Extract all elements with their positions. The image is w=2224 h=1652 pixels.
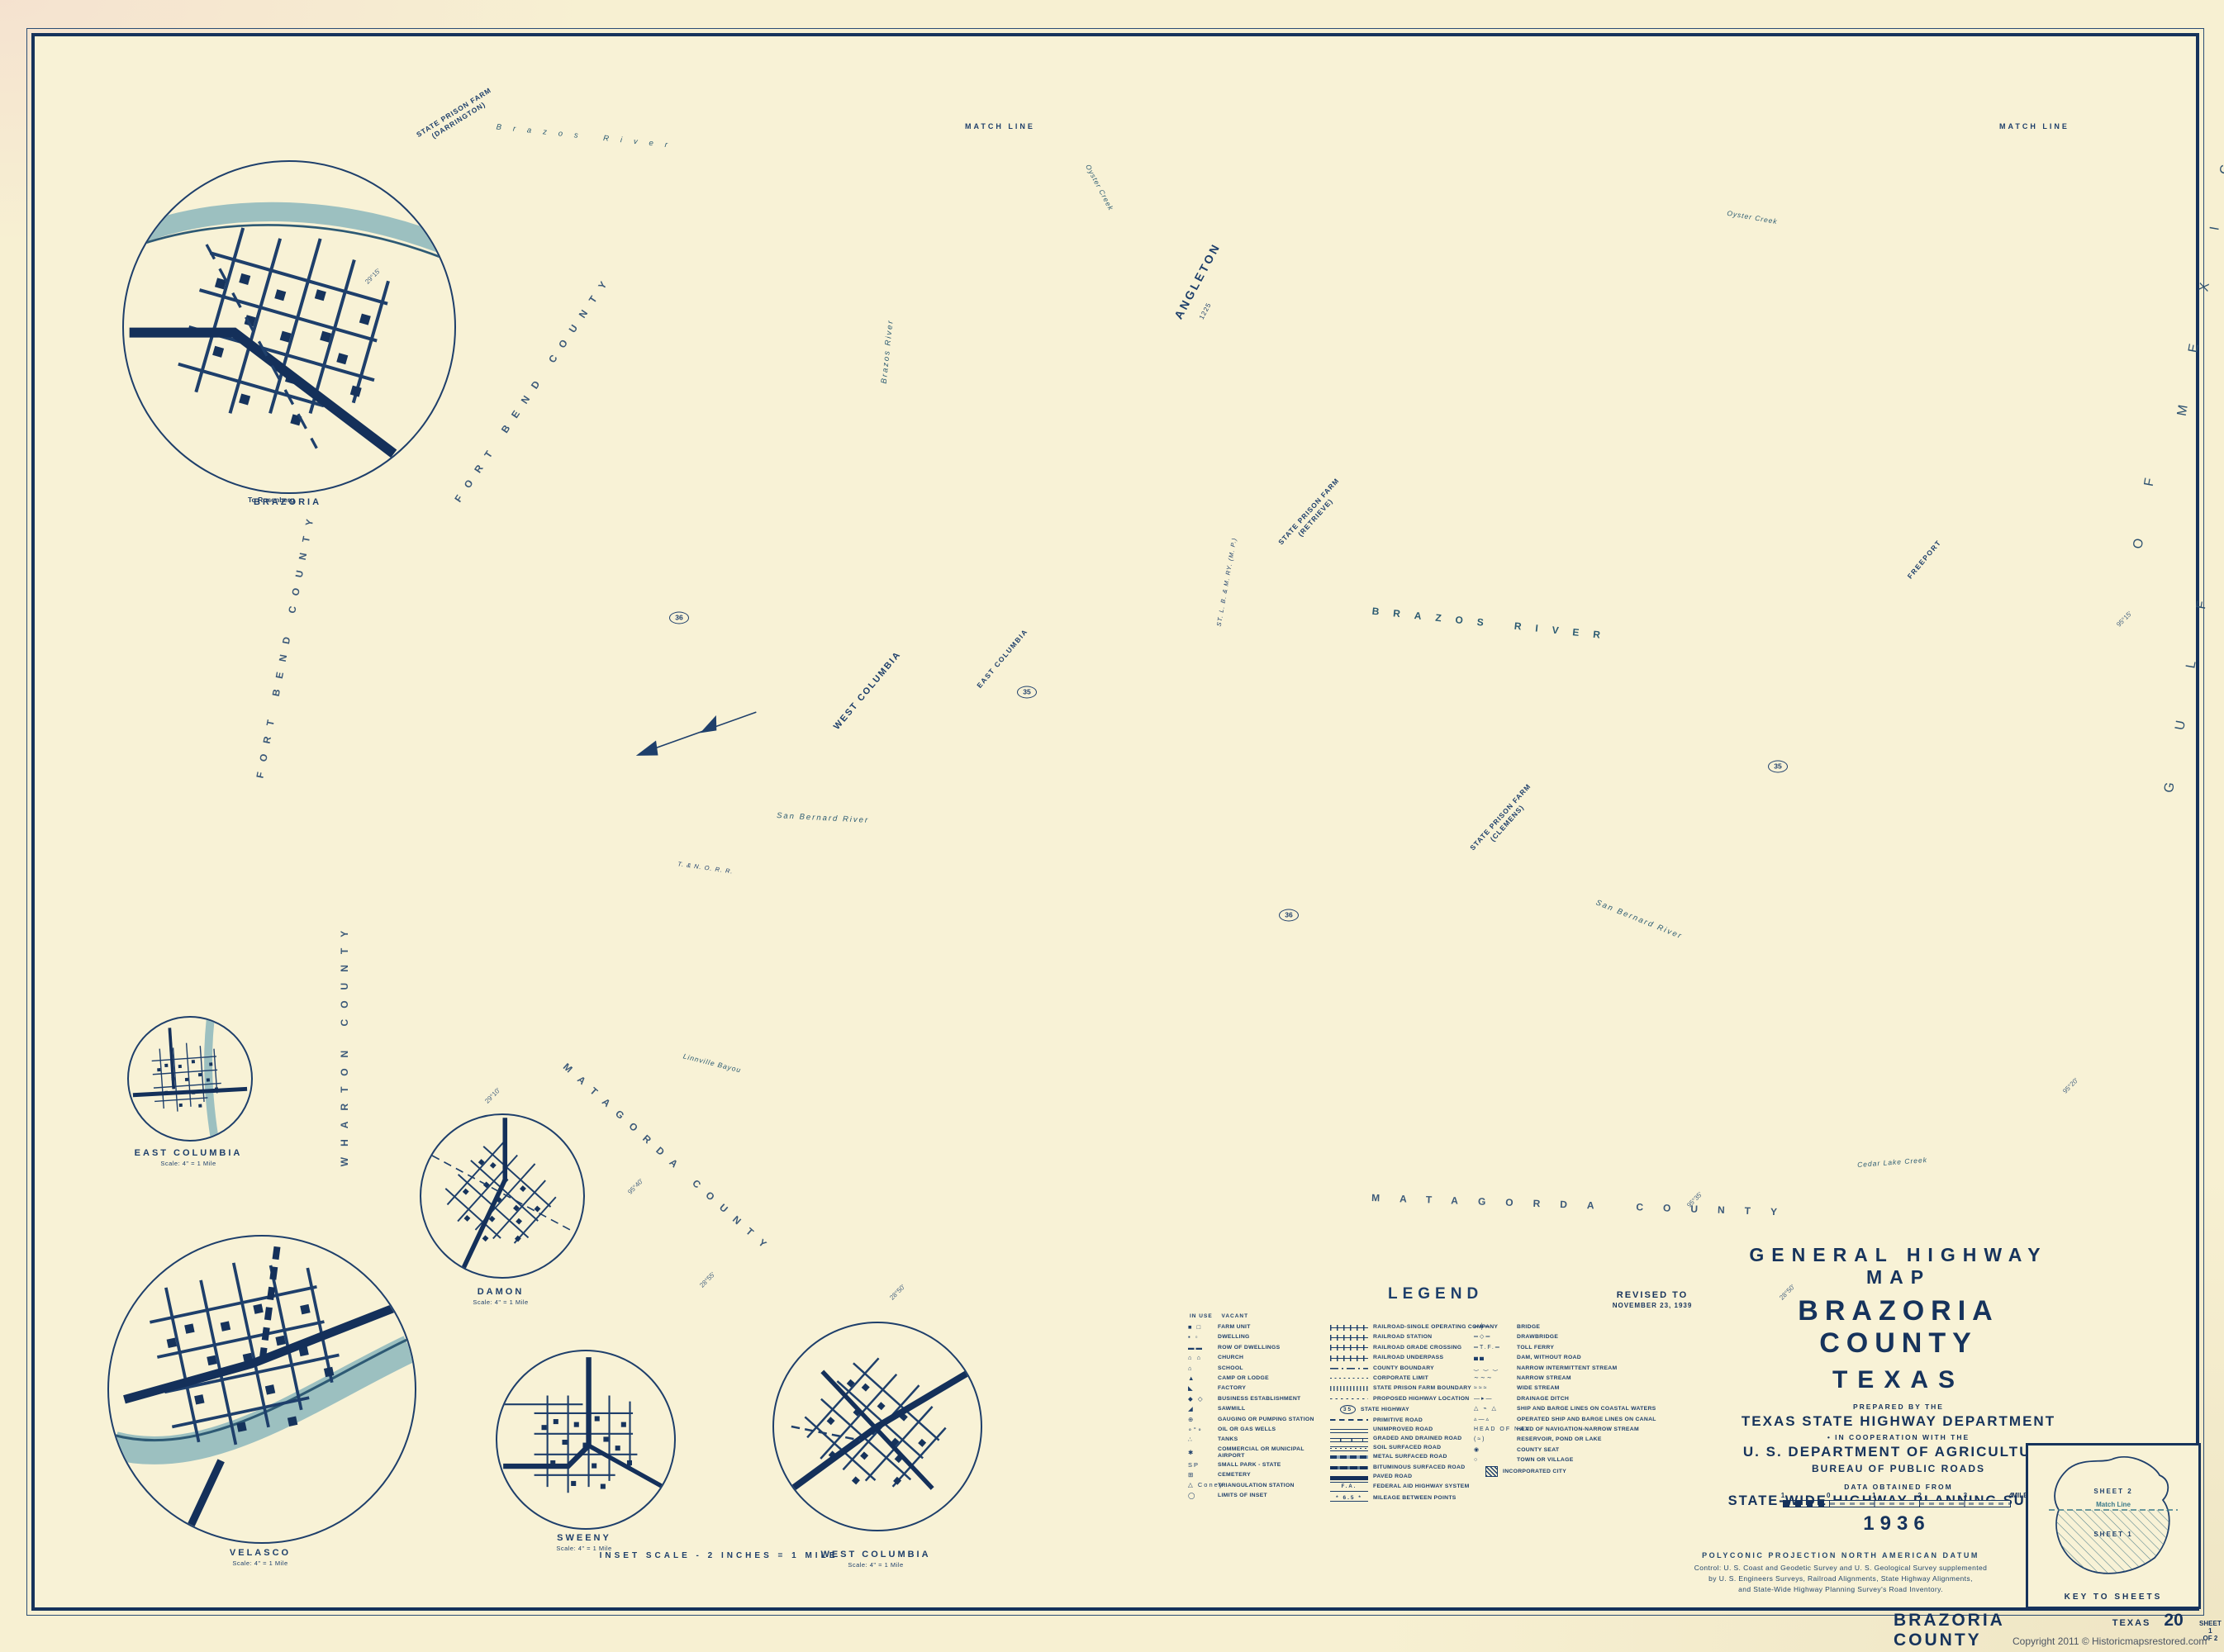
legend-item: ⌂SCHOOL (1188, 1365, 1327, 1373)
footer-state: TEXAS (2112, 1618, 2151, 1628)
data-obtained-line: DATA OBTAINED FROM (1725, 1483, 2072, 1491)
legend-item-label: CORPORATE LIMIT (1373, 1375, 1428, 1382)
legend-item-label: DRAINAGE DITCH (1517, 1396, 1569, 1403)
legend-item-label: OPERATED SHIP AND BARGE LINES ON CANAL (1517, 1417, 1656, 1423)
inset-name: VELASCO (230, 1548, 291, 1558)
inset-velasco-art (109, 1237, 415, 1542)
legend-item: ○TOWN OR VILLAGE (1474, 1456, 1672, 1464)
factory-icon: ◣ (1188, 1384, 1213, 1393)
legend-item-label: DAM, WITHOUT ROAD (1517, 1355, 1581, 1361)
map-kicker: GENERAL HIGHWAY MAP (1725, 1244, 2072, 1289)
ship-coastal-icon: △ ⌁ △ (1474, 1405, 1512, 1413)
legend-item-label: NARROW INTERMITTENT STREAM (1517, 1365, 1617, 1372)
legend-item: ∴TANKS (1188, 1436, 1327, 1444)
legend-item-label: TRIANGULATION STATION (1218, 1483, 1295, 1489)
copyright-line: Copyright 2011 © Historicmapsrestored.co… (2013, 1635, 2207, 1647)
inset-brazoria (122, 160, 456, 494)
inset-scale: Scale: 4" = 1 Mile (473, 1298, 528, 1306)
legend-item-label: CAMP OR LODGE (1218, 1375, 1269, 1382)
legend-item: ▵—▵OPERATED SHIP AND BARGE LINES ON CANA… (1474, 1416, 1672, 1424)
legend-item: △ ConeyTRIANGULATION STATION (1188, 1481, 1327, 1489)
legend-item: ═╪═BRIDGE (1474, 1323, 1672, 1332)
inset-scale: Scale: 4" = 1 Mile (820, 1561, 930, 1569)
legend-item-label: DWELLING (1218, 1334, 1250, 1341)
inset-east-columbia-art (129, 1018, 251, 1140)
legend-item: HEAD OF NAVHEAD OF NAVIGATION-NARROW STR… (1474, 1426, 1672, 1434)
key-to-sheets-caption: KEY TO SHEETS (2028, 1593, 2198, 1602)
metal-road-icon (1330, 1453, 1368, 1461)
scale-tick-label: 1 (1872, 1492, 1875, 1499)
bureau-line: BUREAU OF PUBLIC ROADS (1725, 1463, 2072, 1474)
state-highway-shield: 35 (1017, 686, 1037, 699)
ship-canal-icon: ▵—▵ (1474, 1416, 1512, 1424)
airport-icon: ✱ (1188, 1449, 1213, 1457)
county-seat-icon: ◉ (1474, 1446, 1512, 1455)
inset-velasco-caption: VELASCO Scale: 4" = 1 Mile (230, 1548, 291, 1567)
legend-item: △ ⌁ △SHIP AND BARGE LINES ON COASTAL WAT… (1474, 1405, 1672, 1413)
county-boundary-icon (1330, 1365, 1368, 1373)
railroad-icon (1330, 1323, 1368, 1332)
wharton-county-label: WHARTON COUNTY (339, 920, 350, 1166)
legend-item: ▪ ▫DWELLING (1188, 1333, 1327, 1341)
narrow-int-stream-icon: ‿ ‿ ‿ (1474, 1365, 1512, 1373)
legend-item-label: STATE HIGHWAY (1361, 1407, 1409, 1413)
inset-damon-art (421, 1115, 583, 1277)
state-highway-icon: 35 (1340, 1405, 1356, 1414)
inset-sweeny-art (497, 1351, 674, 1528)
school-icon: ⌂ (1188, 1365, 1213, 1373)
control-line-3: and State-Wide Highway Planning Survey's… (1694, 1584, 1988, 1595)
legend-item: ⊕GAUGING OR PUMPING STATION (1188, 1416, 1327, 1424)
tanks-icon: ∴ (1188, 1436, 1213, 1444)
legend-item-label: COMMERCIAL OR MUNICIPAL AIRPORT (1218, 1446, 1327, 1460)
legend-item: ◯LIMITS OF INSET (1188, 1492, 1327, 1500)
legend-item-label: FACTORY (1218, 1385, 1246, 1392)
legend-item-label: BRIDGE (1517, 1324, 1540, 1331)
inset-brazoria-caption: BRAZORIA (254, 497, 321, 507)
legend: LEGEND IN USE VACANT ■ □FARM UNIT▪ ▫DWEL… (1188, 1282, 1717, 1505)
legend-item-label: PAVED ROAD (1373, 1474, 1412, 1480)
scale-bar: MILES 101234 1936 (1783, 1492, 2011, 1536)
legend-item: F.A.FEDERAL AID HIGHWAY SYSTEM (1330, 1482, 1510, 1492)
legend-item-label: FEDERAL AID HIGHWAY SYSTEM (1373, 1483, 1470, 1490)
legend-in-use-header: IN USE (1190, 1313, 1213, 1319)
church-icon: ⌂ ⌂ (1188, 1354, 1213, 1362)
farm-unit-icon: ■ □ (1188, 1323, 1213, 1332)
legend-item: SPSMALL PARK - STATE (1188, 1461, 1327, 1469)
legend-vacant-header: VACANT (1221, 1313, 1248, 1319)
legend-item: ⊞CEMETERY (1188, 1471, 1327, 1479)
legend-item-label: SCHOOL (1218, 1365, 1243, 1372)
inset-scale: Scale: 4" = 1 Mile (135, 1160, 243, 1167)
department-line: TEXAS STATE HIGHWAY DEPARTMENT (1725, 1413, 2072, 1430)
legend-item: ▬▬ROW OF DWELLINGS (1188, 1344, 1327, 1352)
small-park-icon: SP (1188, 1461, 1213, 1469)
legend-item-label: LIMITS OF INSET (1218, 1493, 1267, 1499)
legend-item-label: INCORPORATED CITY (1503, 1469, 1566, 1475)
legend-item-label: HEAD OF NAVIGATION-NARROW STREAM (1517, 1427, 1639, 1433)
legend-item: —▸—DRAINAGE DITCH (1474, 1395, 1672, 1403)
usda-line: U. S. DEPARTMENT OF AGRICULTURE (1725, 1444, 2072, 1460)
federal-aid-icon: F.A. (1330, 1482, 1368, 1492)
legend-item: ═◇═DRAWBRIDGE (1474, 1333, 1672, 1341)
legend-item-label: RAILROAD GRADE CROSSING (1373, 1345, 1461, 1351)
legend-item: (≈)RESERVOIR, POND OR LAKE (1474, 1436, 1672, 1444)
legend-item-label: RESERVOIR, POND OR LAKE (1517, 1436, 1602, 1443)
legend-item: ≈≈≈WIDE STREAM (1474, 1384, 1672, 1393)
legend-item-label: GAUGING OR PUMPING STATION (1218, 1417, 1314, 1423)
narrow-stream-icon: ∼∼∼ (1474, 1374, 1512, 1383)
footer-sheet-number: 20 (2164, 1611, 2183, 1631)
legend-column-symbols: ■ □FARM UNIT▪ ▫DWELLING▬▬ROW OF DWELLING… (1188, 1323, 1327, 1502)
legend-column-water: ═╪═BRIDGE═◇═DRAWBRIDGE═T.F.═TOLL FERRY▄▄… (1474, 1323, 1672, 1479)
legend-item-label: CHURCH (1218, 1355, 1243, 1361)
legend-item: * 6.5 *MILEAGE BETWEEN POINTS (1330, 1494, 1510, 1502)
legend-item: ▄▄DAM, WITHOUT ROAD (1474, 1354, 1672, 1362)
legend-item-label: NARROW STREAM (1517, 1375, 1571, 1382)
title-block: GENERAL HIGHWAY MAP BRAZORIA COUNTY TEXA… (1725, 1244, 2072, 1509)
inset-scale-note: INSET SCALE - 2 INCHES = 1 MILE (600, 1551, 839, 1560)
head-nav-icon: HEAD OF NAV (1474, 1426, 1512, 1434)
scale-tick-label: 2 (1917, 1492, 1921, 1499)
legend-item-label: TOWN OR VILLAGE (1517, 1457, 1574, 1464)
prison-boundary-icon (1330, 1384, 1368, 1393)
cooperation-line: • IN COOPERATION WITH THE (1725, 1433, 2072, 1441)
business-icon: ◆ ◇ (1188, 1395, 1213, 1403)
key-sheet1-label: SHEET 1 (2093, 1531, 2132, 1538)
legend-item-label: DRAWBRIDGE (1517, 1334, 1558, 1341)
scale-bar-rule (1783, 1500, 2011, 1507)
legend-item-label: GRADED AND DRAINED ROAD (1373, 1436, 1461, 1442)
legend-item: ◣FACTORY (1188, 1384, 1327, 1393)
legend-item: ✱COMMERCIAL OR MUNICIPAL AIRPORT (1188, 1446, 1327, 1460)
proposed-highway-icon (1330, 1395, 1368, 1403)
legend-item: ▲CAMP OR LODGE (1188, 1374, 1327, 1383)
triangulation-icon: △ Coney (1188, 1481, 1213, 1489)
bridge-icon: ═╪═ (1474, 1323, 1512, 1332)
inset-east-columbia-caption: EAST COLUMBIA Scale: 4" = 1 Mile (135, 1148, 243, 1167)
inset-west-columbia-art (774, 1323, 981, 1530)
inset-brazoria-art (124, 162, 454, 492)
footer-sheet-line1: SHEET 1 (2197, 1621, 2224, 1635)
state-highway-shield: 35 (1768, 761, 1788, 773)
legend-item-label: ROW OF DWELLINGS (1218, 1345, 1280, 1351)
legend-item: ◆ ◇BUSINESS ESTABLISHMENT (1188, 1395, 1327, 1403)
inset-name: DAMON (473, 1287, 528, 1297)
legend-item-label: OIL OR GAS WELLS (1218, 1427, 1276, 1433)
legend-item-label: FARM UNIT (1218, 1324, 1251, 1331)
dam-icon: ▄▄ (1474, 1354, 1512, 1362)
map-title-state: TEXAS (1725, 1366, 2072, 1394)
legend-item-label: RAILROAD UNDERPASS (1373, 1355, 1443, 1361)
soil-road-icon (1330, 1446, 1368, 1450)
control-line-1: Control: U. S. Coast and Geodetic Survey… (1694, 1563, 1988, 1574)
mileage-icon: * 6.5 * (1330, 1494, 1368, 1502)
inset-velasco (107, 1235, 416, 1544)
toll-ferry-icon: ═T.F.═ (1474, 1344, 1512, 1352)
legend-item-label: STATE PRISON FARM BOUNDARY (1373, 1385, 1471, 1392)
map-title-county: BRAZORIA COUNTY (1725, 1295, 2072, 1360)
incorporated-city-icon (1485, 1466, 1498, 1477)
map-page: MATCH LINE MATCH LINE G U L F O F M E X … (0, 0, 2224, 1652)
sawmill-icon: ◢ (1188, 1405, 1213, 1413)
scale-tick-label: 1 (1781, 1492, 1784, 1499)
match-line-label: MATCH LINE (1999, 122, 2070, 131)
legend-item-label: TOLL FERRY (1517, 1345, 1554, 1351)
legend-item-label: SAWMILL (1218, 1406, 1245, 1412)
north-arrow-icon (628, 702, 768, 768)
inset-name: EAST COLUMBIA (135, 1148, 243, 1158)
legend-item-label: COUNTY SEAT (1517, 1447, 1559, 1454)
inset-sweeny (496, 1350, 676, 1530)
legend-item-label: PRIMITIVE ROAD (1373, 1417, 1423, 1424)
legend-item-label: UNIMPROVED ROAD (1373, 1427, 1433, 1433)
inset-damon (420, 1113, 585, 1279)
limits-inset-icon: ◯ (1188, 1492, 1213, 1500)
legend-item-label: MILEAGE BETWEEN POINTS (1373, 1495, 1457, 1502)
inset-sweeny-caption: SWEENY Scale: 4" = 1 Mile (556, 1533, 611, 1552)
legend-item: INCORPORATED CITY (1474, 1466, 1672, 1477)
projection-note: POLYCONIC PROJECTION NORTH AMERICAN DATU… (1694, 1551, 1988, 1594)
reservoir-icon: (≈) (1474, 1436, 1512, 1444)
state-highway-shield: 36 (669, 612, 689, 624)
key-to-sheets-art: SHEET 2 Match Line SHEET 1 (2032, 1450, 2194, 1581)
legend-item: ∘°∘OIL OR GAS WELLS (1188, 1426, 1327, 1434)
legend-item-label: METAL SURFACED ROAD (1373, 1454, 1447, 1460)
corporate-limit-icon (1330, 1374, 1368, 1383)
legend-item: ‿ ‿ ‿NARROW INTERMITTENT STREAM (1474, 1365, 1672, 1373)
legend-item: ◉COUNTY SEAT (1474, 1446, 1672, 1455)
projection-line: POLYCONIC PROJECTION NORTH AMERICAN DATU… (1694, 1551, 1988, 1559)
legend-item: ⌂ ⌂CHURCH (1188, 1354, 1327, 1362)
key-match-line-label: Match Line (2096, 1501, 2131, 1508)
rr-station-icon (1330, 1333, 1368, 1341)
map-year: 1936 (1783, 1512, 2011, 1536)
scale-tick-label: 3 (1964, 1492, 1967, 1499)
camp-icon: ▲ (1188, 1374, 1213, 1383)
primitive-road-icon (1330, 1417, 1368, 1425)
inset-name: SWEENY (556, 1533, 611, 1543)
inset-name: BRAZORIA (254, 497, 321, 507)
rr-underpass-icon (1330, 1354, 1368, 1362)
scale-tick-label: 4 (2009, 1492, 2013, 1499)
legend-item-label: COUNTY BOUNDARY (1373, 1365, 1434, 1372)
legend-item-label: CEMETERY (1218, 1472, 1251, 1479)
control-line-2: by U. S. Engineers Surveys, Railroad Ali… (1694, 1574, 1988, 1584)
dwelling-icon: ▪ ▫ (1188, 1333, 1213, 1341)
oil-gas-icon: ∘°∘ (1188, 1426, 1213, 1434)
inset-damon-caption: DAMON Scale: 4" = 1 Mile (473, 1287, 528, 1306)
legend-item-label: TANKS (1218, 1436, 1238, 1443)
scale-tick-label: 0 (1827, 1492, 1830, 1499)
key-sheet2-label: SHEET 2 (2093, 1488, 2132, 1495)
prepared-by-line: PREPARED BY THE (1725, 1403, 2072, 1411)
legend-item-label: SOIL SURFACED ROAD (1373, 1445, 1441, 1451)
legend-item-label: WIDE STREAM (1517, 1385, 1560, 1392)
legend-item: ∼∼∼NARROW STREAM (1474, 1374, 1672, 1383)
cemetery-icon: ⊞ (1188, 1471, 1213, 1479)
wide-stream-icon: ≈≈≈ (1474, 1384, 1512, 1393)
legend-item: ═T.F.═TOLL FERRY (1474, 1344, 1672, 1352)
drainage-ditch-icon: —▸— (1474, 1395, 1512, 1403)
inset-scale: Scale: 4" = 1 Mile (230, 1559, 291, 1567)
inset-east-columbia (127, 1016, 253, 1142)
paved-road-icon (1330, 1476, 1368, 1480)
state-highway-shield: 36 (1279, 909, 1299, 922)
legend-item-label: RAILROAD STATION (1373, 1334, 1432, 1341)
legend-item-label: BUSINESS ESTABLISHMENT (1218, 1396, 1301, 1403)
legend-usage-headers: IN USE VACANT (1190, 1313, 1255, 1319)
scale-bar-ticks: MILES 101234 (1783, 1492, 2011, 1500)
graded-road-icon (1330, 1438, 1368, 1442)
row-dwellings-icon: ▬▬ (1188, 1344, 1213, 1352)
match-line-label: MATCH LINE (965, 122, 1035, 131)
rr-crossing-icon (1330, 1344, 1368, 1352)
unimproved-road-icon (1330, 1429, 1368, 1433)
legend-item-label: BITUMINOUS SURFACED ROAD (1373, 1464, 1465, 1471)
inset-west-columbia (772, 1322, 982, 1531)
drawbridge-icon: ═◇═ (1474, 1333, 1512, 1341)
legend-item-label: SMALL PARK - STATE (1218, 1462, 1281, 1469)
town-village-icon: ○ (1474, 1456, 1512, 1464)
legend-item-label: PROPOSED HIGHWAY LOCATION (1373, 1396, 1470, 1403)
legend-item: ◢SAWMILL (1188, 1405, 1327, 1413)
legend-item: ■ □FARM UNIT (1188, 1323, 1327, 1332)
legend-item-label: SHIP AND BARGE LINES ON COASTAL WATERS (1517, 1406, 1656, 1412)
key-to-sheets: SHEET 2 Match Line SHEET 1 KEY TO SHEETS (2026, 1443, 2201, 1609)
bituminous-road-icon (1330, 1464, 1368, 1472)
gauging-icon: ⊕ (1188, 1416, 1213, 1424)
legend-title: LEGEND (1388, 1285, 1483, 1303)
